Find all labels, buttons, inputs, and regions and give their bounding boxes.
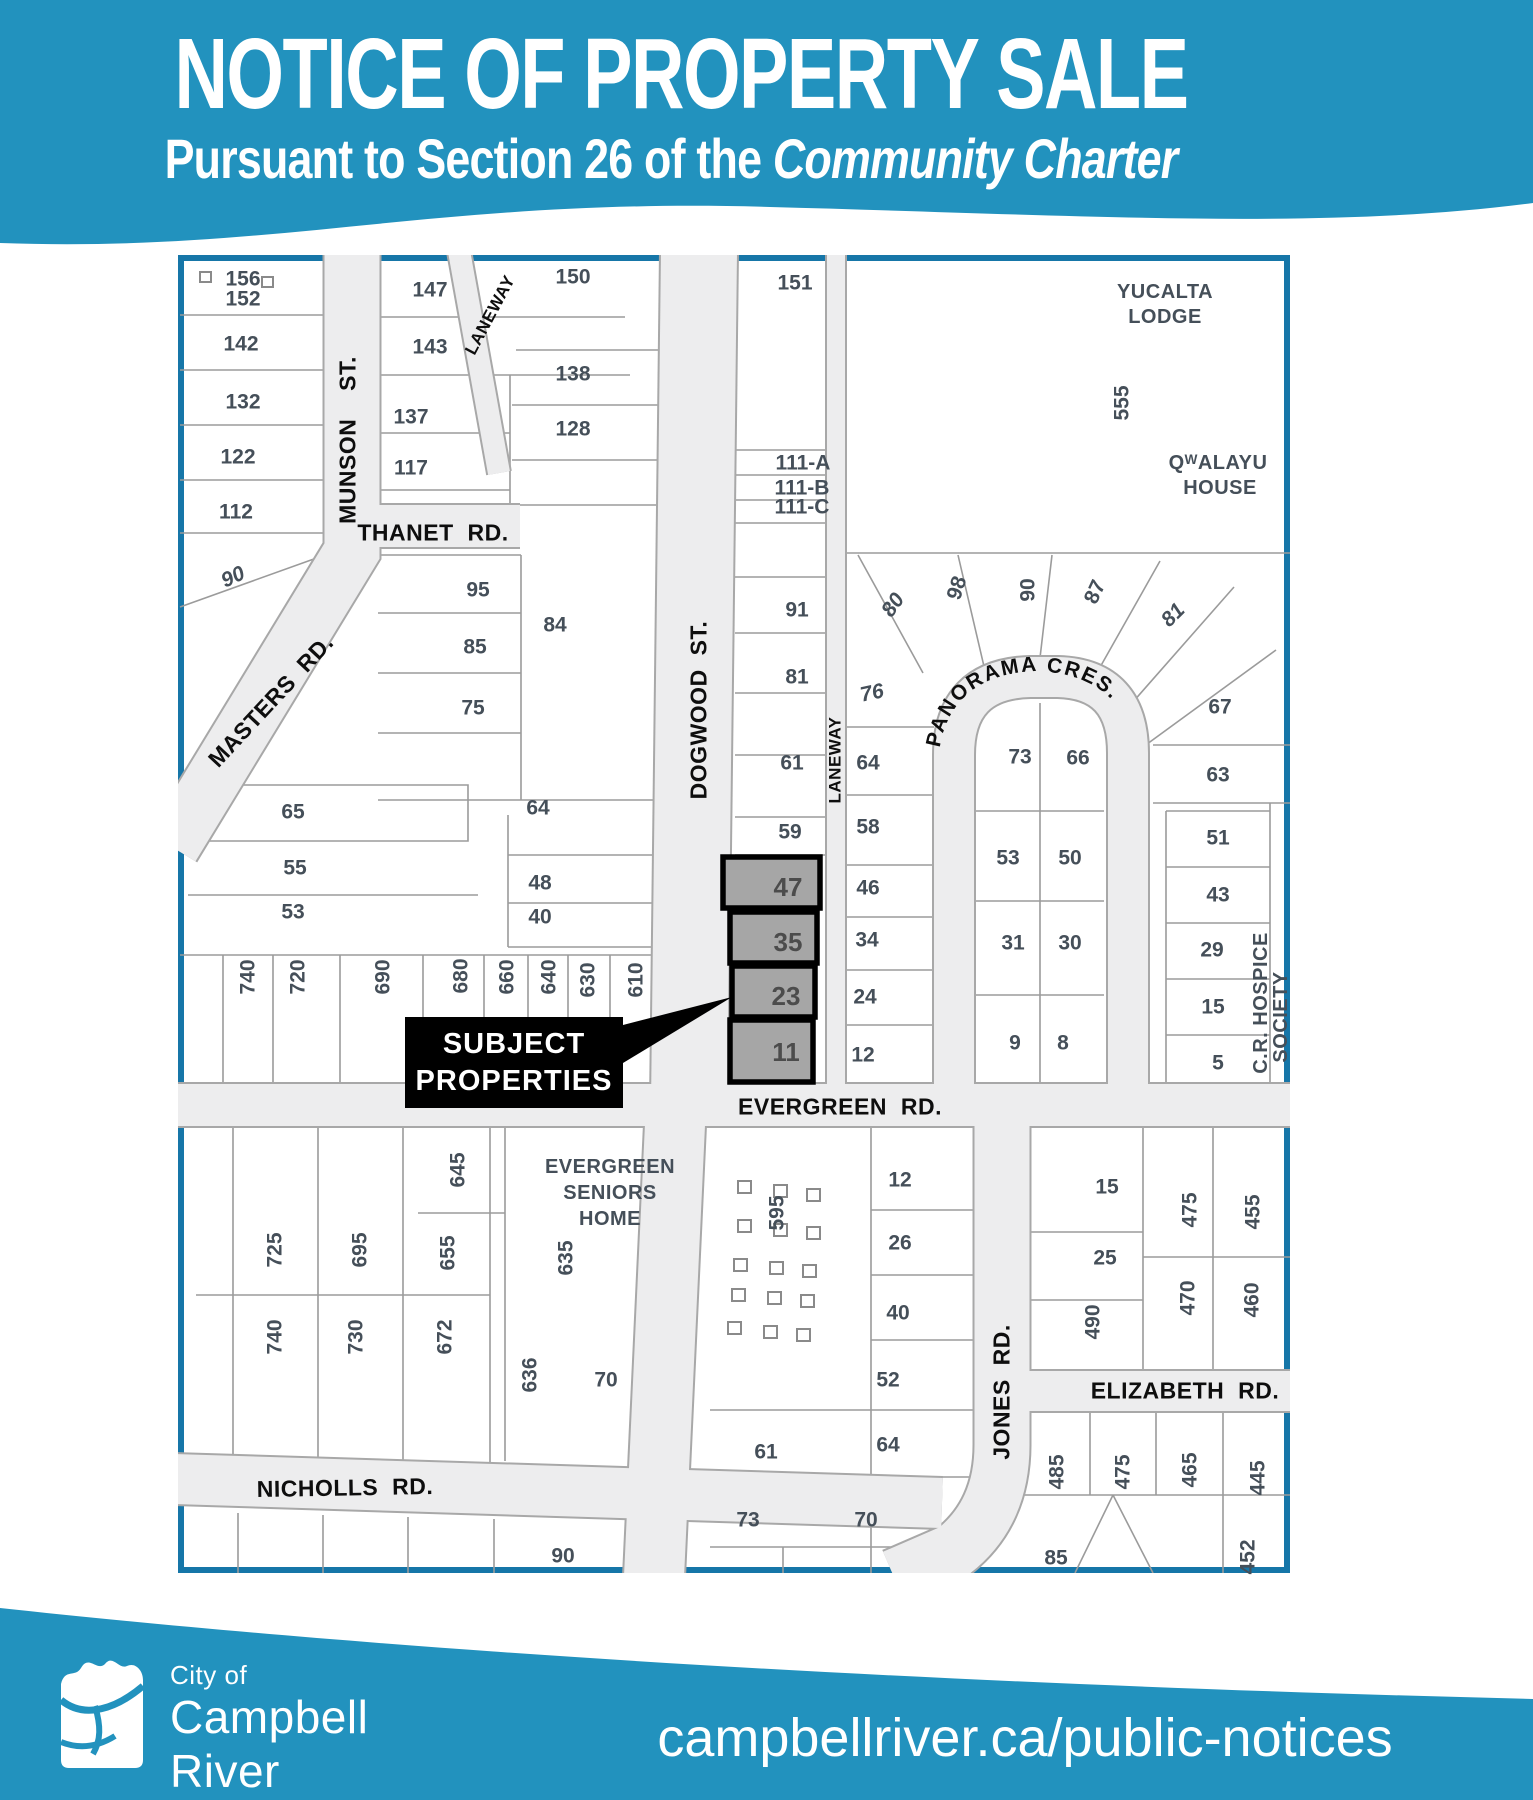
property-map: PANORAMA CRES. SUBJECT PROPERTIES MUNSON… bbox=[178, 255, 1290, 1573]
logo-campbell: Campbell bbox=[170, 1691, 368, 1745]
subject-lot-number: 47 bbox=[774, 874, 803, 900]
lot-number: 128 bbox=[555, 419, 590, 440]
street-label: ELIZABETH RD. bbox=[1091, 1380, 1280, 1403]
lot-number: 455 bbox=[1243, 1194, 1264, 1229]
lot-number: 53 bbox=[996, 848, 1019, 869]
lot-number: 64 bbox=[876, 1435, 899, 1456]
notice-subtitle: Pursuant to Section 26 of the Community … bbox=[134, 126, 1208, 191]
lot-number: 51 bbox=[1206, 828, 1229, 849]
lot-number: 48 bbox=[528, 873, 551, 894]
lot-number: 85 bbox=[463, 637, 486, 658]
lot-number: 76 bbox=[858, 680, 885, 705]
lot-number: 81 bbox=[785, 667, 808, 688]
lot-number: 740 bbox=[238, 959, 259, 994]
lot-number: 475 bbox=[1113, 1454, 1134, 1489]
lot-number: 67 bbox=[1208, 697, 1231, 718]
lot-number: 34 bbox=[855, 930, 878, 951]
header-text-block: NOTICE OF PROPERTY SALE Pursuant to Sect… bbox=[0, 0, 1342, 191]
lot-number: 680 bbox=[451, 958, 472, 993]
lot-number: 111-A bbox=[776, 453, 831, 474]
lot-number: 695 bbox=[350, 1232, 371, 1267]
lot-number: 672 bbox=[435, 1319, 456, 1354]
lot-number: 143 bbox=[412, 337, 447, 358]
lot-number: 80 bbox=[878, 589, 909, 620]
lot-number: 460 bbox=[1242, 1282, 1263, 1317]
lot-number: 720 bbox=[288, 959, 309, 994]
street-label: LANEWAY bbox=[462, 273, 518, 358]
lot-number: 87 bbox=[1081, 577, 1110, 607]
lot-number: 91 bbox=[785, 600, 808, 621]
lot-number: 630 bbox=[578, 962, 599, 997]
lot-number: 73 bbox=[1008, 747, 1031, 768]
street-label: DOGWOOD ST. bbox=[688, 621, 711, 800]
lot-number: 25 bbox=[1093, 1248, 1116, 1269]
lot-number: 112 bbox=[219, 502, 253, 523]
lot-number: 90 bbox=[218, 563, 248, 592]
lot-number: 12 bbox=[851, 1045, 874, 1066]
landmark-label: C.R. HOSPICE bbox=[1251, 932, 1271, 1074]
lot-number: 555 bbox=[1112, 385, 1133, 420]
landmark-label: SENIORS bbox=[563, 1183, 657, 1203]
logo-river: River bbox=[170, 1745, 368, 1799]
lot-number: 465 bbox=[1180, 1452, 1201, 1487]
lot-number: 490 bbox=[1083, 1304, 1104, 1339]
lot-number: 85 bbox=[1044, 1548, 1067, 1569]
lot-number: 64 bbox=[526, 798, 549, 819]
landmark-label: HOUSE bbox=[1183, 478, 1257, 498]
lot-number: 445 bbox=[1248, 1460, 1269, 1495]
lot-number: 30 bbox=[1058, 933, 1081, 954]
landmark-label: SOCIETY bbox=[1271, 971, 1291, 1062]
street-label: EVERGREEN RD. bbox=[738, 1096, 942, 1119]
lot-number: 40 bbox=[886, 1303, 909, 1324]
lot-number: 152 bbox=[225, 289, 260, 310]
lot-number: 90 bbox=[551, 1546, 574, 1567]
city-logo-text: City of Campbell River bbox=[170, 1660, 368, 1799]
street-label: THANET RD. bbox=[357, 522, 508, 545]
lot-number: 452 bbox=[1238, 1539, 1259, 1574]
lot-number: 46 bbox=[856, 878, 879, 899]
lot-number: 725 bbox=[265, 1232, 286, 1267]
lot-number: 55 bbox=[283, 858, 306, 879]
lot-number: 635 bbox=[556, 1240, 577, 1275]
lot-number: 117 bbox=[394, 458, 428, 479]
lot-number: 151 bbox=[777, 273, 812, 294]
lot-number: 610 bbox=[626, 962, 647, 997]
lot-number: 73 bbox=[736, 1510, 759, 1531]
lot-number: 137 bbox=[393, 407, 428, 428]
lot-number: 156 bbox=[225, 269, 260, 290]
lot-number: 53 bbox=[281, 902, 304, 923]
lot-number: 58 bbox=[856, 817, 879, 838]
lot-number: 61 bbox=[754, 1442, 777, 1463]
lot-number: 9 bbox=[1009, 1033, 1021, 1054]
lot-number: 70 bbox=[854, 1510, 877, 1531]
lot-number: 111-C bbox=[775, 497, 830, 518]
lot-number: 65 bbox=[281, 802, 304, 823]
notice-subtitle-italic: Community Charter bbox=[773, 127, 1178, 190]
lot-number: 75 bbox=[461, 698, 484, 719]
landmark-label: QᵂALAYU bbox=[1169, 453, 1268, 473]
footer-banner: City of Campbell River campbellriver.ca/… bbox=[0, 1595, 1533, 1800]
lot-number: 81 bbox=[1157, 599, 1188, 630]
lot-number: 150 bbox=[555, 267, 590, 288]
lot-number: 660 bbox=[497, 959, 518, 994]
lot-number: 15 bbox=[1201, 997, 1224, 1018]
map-label-layer: MUNSON ST.LANEWAYTHANET RD.MASTERS RD.DO… bbox=[178, 255, 1290, 1573]
street-label: MUNSON ST. bbox=[337, 356, 360, 524]
lot-number: 50 bbox=[1058, 848, 1081, 869]
header-banner: NOTICE OF PROPERTY SALE Pursuant to Sect… bbox=[0, 0, 1533, 262]
lot-number: 52 bbox=[876, 1370, 899, 1391]
notice-page: NOTICE OF PROPERTY SALE Pursuant to Sect… bbox=[0, 0, 1533, 1800]
lot-number: 43 bbox=[1206, 885, 1229, 906]
lot-number: 655 bbox=[438, 1235, 459, 1270]
lot-number: 485 bbox=[1047, 1454, 1068, 1489]
lot-number: 29 bbox=[1200, 940, 1223, 961]
landmark-label: LODGE bbox=[1128, 307, 1202, 327]
lot-number: 95 bbox=[466, 580, 489, 601]
lot-number: 142 bbox=[223, 334, 258, 355]
logo-city-of: City of bbox=[170, 1660, 368, 1691]
lot-number: 59 bbox=[778, 822, 801, 843]
lot-number: 70 bbox=[594, 1370, 617, 1391]
lot-number: 84 bbox=[543, 615, 566, 636]
lot-number: 98 bbox=[943, 574, 970, 603]
lot-number: 31 bbox=[1001, 933, 1024, 954]
lot-number: 640 bbox=[539, 959, 560, 994]
street-label: NICHOLLS RD. bbox=[257, 1475, 434, 1501]
lot-number: 595 bbox=[767, 1195, 788, 1230]
lot-number: 122 bbox=[220, 447, 255, 468]
lot-number: 24 bbox=[853, 987, 876, 1008]
lot-number: 61 bbox=[780, 753, 803, 774]
lot-number: 138 bbox=[555, 364, 590, 385]
lot-number: 40 bbox=[528, 907, 551, 928]
lot-number: 690 bbox=[373, 959, 394, 994]
lot-number: 5 bbox=[1212, 1053, 1224, 1074]
street-label: MASTERS RD. bbox=[204, 631, 337, 772]
notice-title: NOTICE OF PROPERTY SALE bbox=[174, 24, 1167, 124]
landmark-label: HOME bbox=[579, 1209, 641, 1229]
city-logo-mark bbox=[55, 1642, 150, 1772]
city-logo: City of Campbell River bbox=[55, 1642, 368, 1799]
lot-number: 12 bbox=[888, 1170, 911, 1191]
subject-lot-number: 23 bbox=[772, 983, 801, 1009]
lot-number: 64 bbox=[856, 753, 879, 774]
lot-number: 26 bbox=[888, 1233, 911, 1254]
landmark-label: YUCALTA bbox=[1117, 282, 1213, 302]
lot-number: 740 bbox=[265, 1319, 286, 1354]
lot-number: 132 bbox=[225, 392, 260, 413]
footer-url: campbellriver.ca/public-notices bbox=[560, 1707, 1490, 1769]
lot-number: 63 bbox=[1206, 765, 1229, 786]
lot-number: 147 bbox=[412, 280, 447, 301]
street-label: LANEWAY bbox=[827, 717, 844, 804]
lot-number: 15 bbox=[1095, 1177, 1118, 1198]
lot-number: 645 bbox=[448, 1152, 469, 1187]
lot-number: 8 bbox=[1057, 1033, 1069, 1054]
lot-number: 470 bbox=[1178, 1280, 1199, 1315]
landmark-label: EVERGREEN bbox=[545, 1157, 675, 1177]
lot-number: 475 bbox=[1180, 1192, 1201, 1227]
subject-lot-number: 35 bbox=[774, 929, 803, 955]
lot-number: 730 bbox=[346, 1319, 367, 1354]
lot-number: 66 bbox=[1066, 748, 1089, 769]
notice-subtitle-prefix: Pursuant to Section 26 of the bbox=[165, 127, 773, 190]
lot-number: 90 bbox=[1018, 578, 1039, 601]
lot-number: 636 bbox=[520, 1357, 541, 1392]
street-label: JONES RD. bbox=[991, 1324, 1014, 1459]
subject-lot-number: 11 bbox=[772, 1039, 800, 1065]
